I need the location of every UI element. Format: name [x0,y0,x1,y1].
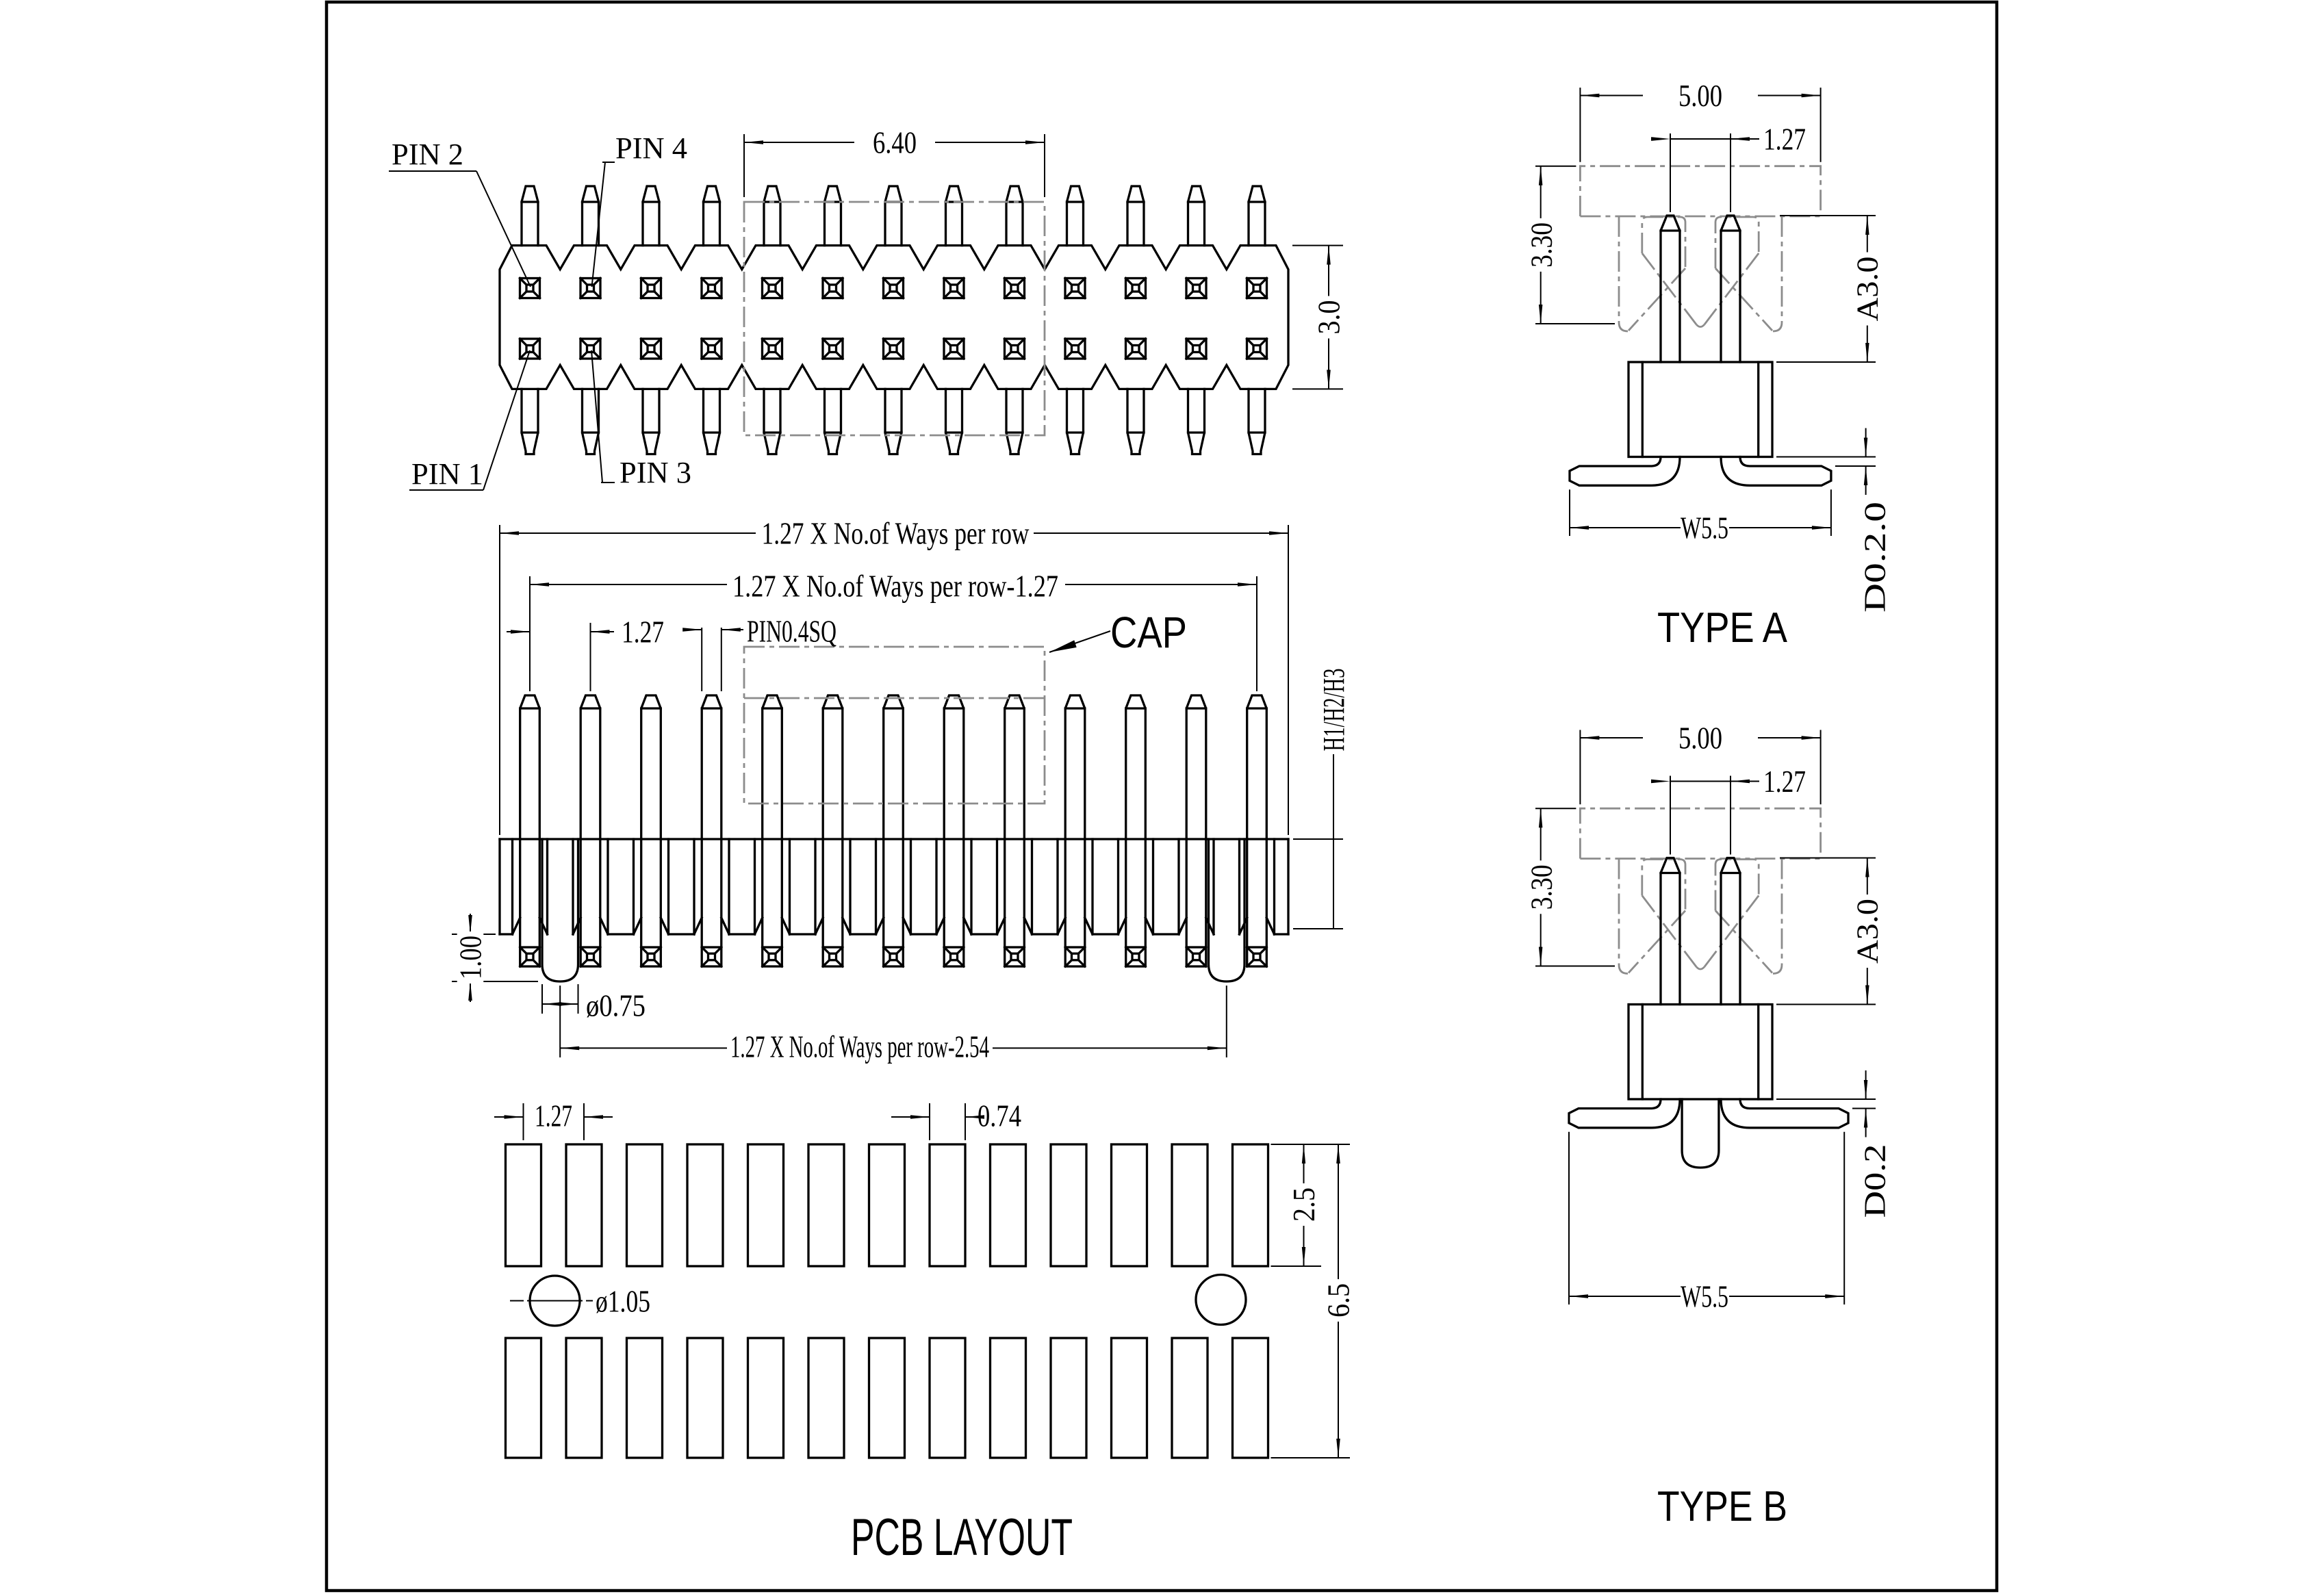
svg-text:1.27 X No.of Ways per row-2.54: 1.27 X No.of Ways per row-2.54 [730,1029,989,1064]
svg-text:D0.2.0: D0.2.0 [1859,502,1892,613]
svg-text:TYPE A: TYPE A [1657,604,1788,652]
svg-text:6.40: 6.40 [873,125,917,160]
svg-text:5.00: 5.00 [1678,78,1722,113]
svg-text:CAP: CAP [1110,608,1187,657]
svg-text:0.74: 0.74 [978,1098,1021,1133]
svg-text:PIN 4: PIN 4 [615,131,687,165]
svg-text:A3.0: A3.0 [1850,899,1884,964]
svg-text:6.5: 6.5 [1321,1283,1356,1317]
svg-text:ø0.75: ø0.75 [586,988,646,1023]
svg-text:PIN 1: PIN 1 [411,457,483,491]
svg-text:1.27 X No.of Ways per row: 1.27 X No.of Ways per row [762,516,1030,551]
svg-text:2.5: 2.5 [1286,1187,1321,1222]
svg-text:PCB LAYOUT: PCB LAYOUT [851,1508,1073,1567]
svg-text:A3.0: A3.0 [1850,257,1884,322]
svg-text:1.27: 1.27 [535,1098,572,1133]
svg-text:1.00: 1.00 [453,936,488,979]
svg-text:PIN 2: PIN 2 [392,138,463,171]
svg-text:H1/H2/H3: H1/H2/H3 [1317,669,1351,751]
svg-text:PIN 3: PIN 3 [620,456,691,489]
svg-text:D0.2: D0.2 [1859,1144,1892,1218]
svg-text:W5.5: W5.5 [1681,1279,1728,1314]
svg-text:1.27: 1.27 [1763,122,1806,157]
svg-text:3.30: 3.30 [1525,864,1559,910]
svg-text:5.00: 5.00 [1678,721,1722,756]
svg-text:3.30: 3.30 [1525,222,1559,268]
svg-text:1.27 X No.of Ways per row-1.27: 1.27 X No.of Ways per row-1.27 [732,569,1058,604]
svg-text:PIN0.4SQ: PIN0.4SQ [747,614,837,649]
svg-text:TYPE B: TYPE B [1657,1483,1787,1530]
svg-text:1.27: 1.27 [1763,764,1806,799]
svg-text:W5.5: W5.5 [1681,511,1728,545]
svg-text:3.0: 3.0 [1312,300,1346,335]
svg-text:ø1.05: ø1.05 [596,1284,650,1319]
svg-text:1.27: 1.27 [622,615,664,650]
